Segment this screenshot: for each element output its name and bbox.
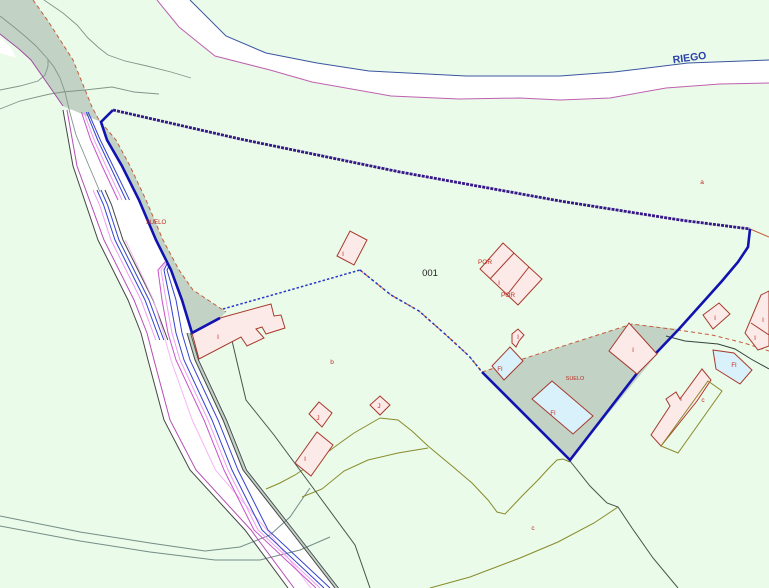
svg-text:SUELO: SUELO	[566, 376, 585, 382]
svg-text:I: I	[498, 280, 500, 287]
svg-text:I: I	[304, 456, 306, 463]
svg-text:001: 001	[422, 268, 438, 279]
svg-text:I: I	[342, 251, 344, 258]
svg-text:I: I	[680, 396, 682, 403]
svg-text:POR: POR	[501, 292, 515, 299]
svg-text:J: J	[316, 415, 319, 422]
svg-text:J: J	[377, 403, 380, 410]
svg-text:I: I	[714, 315, 716, 322]
svg-text:FI: FI	[550, 411, 556, 417]
svg-text:I: I	[632, 347, 634, 354]
svg-text:I: I	[517, 334, 519, 341]
svg-text:I: I	[754, 335, 756, 342]
svg-text:I: I	[217, 334, 219, 341]
svg-text:b: b	[330, 359, 334, 366]
svg-text:FI: FI	[497, 367, 503, 373]
svg-text:POR: POR	[478, 259, 492, 266]
svg-text:FI: FI	[731, 363, 737, 369]
svg-text:SUELO: SUELO	[146, 220, 167, 226]
svg-text:I: I	[762, 317, 764, 324]
svg-text:a: a	[700, 179, 704, 186]
